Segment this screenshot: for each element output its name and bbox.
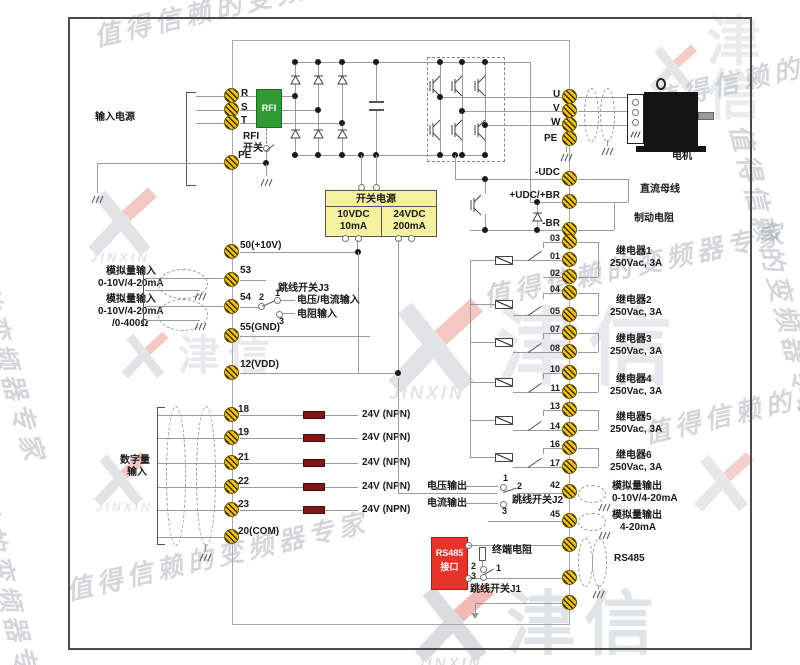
wire	[158, 415, 224, 416]
terminal-t	[224, 115, 239, 130]
terminal-14	[562, 422, 577, 437]
analog-in2-range: 0-10V/4-20mA	[98, 306, 164, 318]
wire	[325, 510, 358, 511]
igbt-icon	[448, 74, 466, 98]
igbt-icon	[471, 74, 489, 98]
junction-dot	[339, 59, 345, 65]
wire-dashed	[266, 128, 267, 144]
wire	[325, 438, 358, 439]
terminal-22-label: 22	[238, 476, 249, 488]
rs485-port-box: RS485 接口	[431, 537, 468, 590]
smps-title: 开关电源	[356, 194, 396, 206]
junction-dot	[315, 107, 321, 113]
terminal-23-label: 23	[238, 499, 249, 511]
junction-dot	[482, 59, 488, 65]
terminal-11	[562, 384, 577, 399]
wiring-diagram: 值得信赖的变频器专家 值得信赖的变频器专家 值得信赖的变频器专家 值得信赖的变频…	[0, 0, 800, 665]
wire	[513, 392, 562, 393]
igbt-icon	[448, 118, 466, 142]
wire	[578, 333, 598, 334]
relay4-name: 继电器4	[616, 374, 652, 386]
wire	[470, 260, 495, 261]
ground-icon	[598, 503, 611, 512]
wire	[470, 420, 495, 421]
diode-icon	[336, 126, 349, 140]
terminal-t-label: T	[241, 115, 247, 127]
terminal-20-label: 20(COM)	[238, 526, 279, 538]
wire	[475, 603, 562, 604]
wire	[543, 448, 544, 454]
terminal-54-label: 54	[240, 292, 251, 304]
wire	[513, 430, 562, 431]
digital-in-bracket	[157, 407, 158, 545]
terminal-08	[562, 344, 577, 359]
relay-group-bracket	[598, 410, 599, 430]
wire	[578, 315, 598, 316]
wire	[196, 123, 224, 124]
dc-bus-label: 直流母线	[640, 184, 680, 196]
junction-dot	[459, 59, 465, 65]
wire-u	[440, 97, 562, 98]
relay3-name: 继电器3	[616, 334, 652, 346]
wire	[464, 486, 498, 487]
wire	[628, 179, 629, 202]
junction-dot	[482, 152, 488, 158]
rfi-switch-label: RFI	[243, 131, 259, 143]
brake-resistor-label: 制动电阻	[634, 213, 674, 225]
wire	[325, 463, 358, 464]
relay-group-bracket	[598, 293, 599, 315]
termination-resistor-label: 终端电阻	[492, 545, 532, 557]
terminal-22	[224, 479, 239, 494]
wire	[240, 280, 266, 281]
digital-in-label: 数字量	[120, 455, 150, 467]
j2-pos3: 3	[502, 506, 507, 516]
diode-icon	[336, 72, 349, 86]
motor-base	[636, 146, 706, 152]
wire	[513, 315, 562, 316]
j1-pos3: 3	[471, 571, 476, 581]
wire	[240, 463, 303, 464]
terminal-54	[224, 299, 239, 314]
relay5-rating: 250Vac, 3A	[610, 424, 662, 436]
wire	[97, 163, 98, 193]
wire	[578, 179, 628, 180]
capacitor-plate	[369, 109, 384, 111]
drive-body-frame	[232, 40, 570, 625]
shield-oval	[196, 406, 216, 546]
terminal-v	[562, 103, 577, 118]
analog-in1-range: 0-10V/4-20mA	[98, 278, 164, 290]
wire	[543, 333, 544, 339]
wire	[464, 503, 498, 504]
smps-v1: 10VDC	[337, 209, 369, 220]
motor-terminal	[632, 109, 639, 116]
ground-icon	[199, 553, 212, 562]
wire	[158, 438, 224, 439]
terminal-17	[562, 459, 577, 474]
wire	[543, 293, 544, 299]
j2-pos1: 1	[503, 473, 508, 483]
terminal-pe-out-label: PE	[544, 133, 557, 145]
j3-option-resistance: 电阻输入	[297, 309, 337, 321]
wire	[97, 163, 224, 164]
smps-a2: 200mA	[393, 221, 426, 232]
diode-icon	[312, 72, 325, 86]
terminal-02	[562, 269, 577, 284]
wire	[205, 544, 206, 552]
wire	[488, 521, 562, 522]
digital-in-voltage-label: 24V (NPN)	[362, 504, 410, 516]
relay6-rating: 250Vac, 3A	[610, 462, 662, 474]
rfi-filter-box: RFI	[256, 89, 282, 128]
wire	[240, 438, 303, 439]
motor-terminal	[632, 99, 639, 106]
jumper-j2-label: 跳线开关J2	[512, 495, 563, 507]
terminal-23	[224, 502, 239, 517]
wire	[607, 140, 608, 146]
terminal-v-label: V	[553, 103, 560, 115]
wire	[543, 373, 562, 374]
wire	[543, 242, 562, 243]
wire	[266, 164, 267, 176]
terminal-53-label: 53	[240, 265, 251, 277]
wire	[398, 493, 497, 494]
rs485-bus-label: RS485	[614, 553, 645, 565]
terminal-50	[224, 244, 239, 259]
digital-in-voltage-label: 24V (NPN)	[362, 481, 410, 493]
junction-dot	[373, 59, 379, 65]
wire	[543, 293, 562, 294]
ground-icon	[260, 178, 273, 187]
current-output-label: 电流输出	[427, 498, 467, 510]
junction-dot	[437, 94, 443, 100]
motor-ground-icon	[630, 130, 641, 139]
wire	[358, 252, 359, 373]
wire	[543, 410, 562, 411]
termination-resistor	[479, 547, 486, 561]
diode-icon	[289, 126, 302, 140]
terminal-05	[562, 307, 577, 322]
digital-in-voltage-label: 24V (NPN)	[362, 432, 410, 444]
junction-dot	[292, 152, 298, 158]
jinxin-en: JINXIN	[416, 655, 482, 665]
terminal-rs485-a	[562, 537, 577, 552]
wire	[578, 352, 598, 353]
terminal-12	[224, 365, 239, 380]
wire	[543, 333, 562, 334]
j1-pin3	[480, 574, 487, 581]
wire	[543, 410, 544, 416]
terminal-45	[562, 513, 577, 528]
terminal-55	[224, 328, 239, 343]
ground-icon	[592, 590, 605, 599]
wire	[281, 300, 295, 301]
terminal-r	[224, 88, 239, 103]
wire	[578, 373, 598, 374]
terminal-20-com	[224, 529, 239, 544]
wire	[513, 260, 562, 261]
arrow-down-icon	[471, 613, 479, 619]
motor-body	[644, 92, 698, 146]
junction-dot	[437, 59, 443, 65]
terminal-13	[562, 402, 577, 417]
terminal-55-label: 55(GND)	[240, 322, 280, 334]
input-resistor	[303, 506, 325, 514]
junction-dot	[459, 108, 465, 114]
motor-label: 电机	[672, 151, 692, 163]
terminal-s-label: S	[241, 102, 248, 114]
wire	[240, 307, 258, 308]
wire	[158, 463, 224, 464]
relay-coil	[495, 416, 513, 425]
motor-terminal	[632, 119, 639, 126]
terminal-w-label: W	[551, 117, 560, 129]
input-resistor	[303, 434, 325, 442]
wire	[578, 293, 598, 294]
relay-coil	[495, 256, 513, 265]
relay2-rating: 250Vac, 3A	[610, 307, 662, 319]
wire	[530, 62, 531, 202]
junction-dot	[315, 59, 321, 65]
diode-icon	[312, 126, 325, 140]
wire	[455, 179, 562, 180]
terminal-19	[224, 430, 239, 445]
input-power-label: 输入电源	[95, 112, 135, 124]
digital-in-bracket-tick	[157, 407, 165, 408]
input-bracket-tick	[186, 185, 196, 186]
relay-coil-bus	[470, 260, 471, 457]
wire	[196, 96, 224, 97]
wire	[578, 242, 598, 243]
wire	[376, 155, 377, 185]
wire	[240, 487, 303, 488]
wire	[485, 182, 486, 194]
terminal-42	[562, 484, 577, 499]
wire	[196, 110, 224, 111]
relay-coil	[495, 453, 513, 462]
wire	[543, 448, 562, 449]
diode-icon	[289, 72, 302, 86]
shield-oval	[592, 538, 607, 587]
capacitor-plate	[369, 101, 384, 103]
terminal-10	[562, 365, 577, 380]
igbt-icon	[426, 118, 444, 142]
terminal-21-label: 21	[238, 452, 249, 464]
voltage-output-label: 电压输出	[427, 481, 467, 493]
wire	[578, 230, 614, 231]
wire	[578, 430, 598, 431]
j3-option-voltage-current: 电压/电流输入	[297, 295, 360, 307]
jumper-j1-label: 跳线开关J1	[470, 584, 521, 596]
terminal-19-label: 19	[238, 427, 249, 439]
terminal-u-label: U	[553, 89, 560, 101]
wire	[566, 146, 567, 152]
wire	[240, 336, 370, 337]
relay-group-bracket	[598, 373, 599, 392]
ground-icon	[560, 153, 573, 162]
terminal-03	[562, 234, 577, 249]
wire	[283, 313, 295, 314]
relay2-name: 继电器2	[616, 295, 652, 307]
watermark-script: 值得信赖的变频器专家	[0, 160, 55, 468]
wire	[398, 240, 399, 373]
junction-dot	[437, 152, 443, 158]
input-bracket-tick	[186, 92, 196, 93]
j3-pos2: 2	[259, 292, 264, 302]
junction-dot	[482, 227, 488, 233]
relay6-name: 继电器6	[616, 450, 652, 462]
br-neg-label: -BR	[525, 218, 560, 230]
analog-in2-label: 模拟量输入	[106, 294, 156, 306]
terminal-12-label: 12(VDD)	[240, 359, 279, 371]
terminal-16	[562, 440, 577, 455]
relay-group-bracket	[598, 242, 599, 277]
ground-icon	[194, 292, 207, 301]
digital-in-bracket-tick	[157, 544, 165, 545]
shield-oval	[166, 406, 186, 546]
udc-pos-label: +UDC/+BR	[497, 190, 560, 202]
relay1-name: 继电器1	[616, 246, 652, 258]
junction-dot	[292, 93, 298, 99]
terminal-07	[562, 325, 577, 340]
wire	[158, 537, 224, 538]
relay-coil	[495, 338, 513, 347]
wire	[517, 493, 562, 494]
terminal-45-label: 45	[538, 509, 560, 519]
junction-dot	[339, 152, 345, 158]
relay1-rating: 250Vac, 3A	[610, 258, 662, 270]
analog-in1-label: 模拟量输入	[106, 266, 156, 278]
analog-in-bracket	[143, 272, 144, 324]
terminal-42-label: 42	[538, 480, 560, 490]
relay-coil	[495, 300, 513, 309]
j3-pos1: 1	[275, 288, 280, 298]
wire	[361, 155, 362, 185]
relay-coil	[495, 378, 513, 387]
wire	[470, 457, 495, 458]
analog-out1-range: 0-10V/4-20mA	[612, 493, 678, 505]
relay4-rating: 250Vac, 3A	[610, 386, 662, 398]
smps-cell-10v: 10VDC10mA	[326, 209, 381, 233]
wire	[470, 304, 495, 305]
terminal-r-label: R	[241, 88, 248, 100]
wire	[398, 378, 399, 493]
analog-out2-label: 模拟量输出	[612, 510, 662, 522]
wire	[325, 487, 358, 488]
shield-oval	[578, 538, 593, 587]
jumper-j3-label: 跳线开关J3	[278, 283, 329, 295]
rs485-box-label2: 接口	[432, 562, 467, 572]
wire	[158, 487, 224, 488]
wire	[543, 373, 544, 379]
terminal-udc-neg	[562, 171, 577, 186]
motor-shaft	[698, 112, 714, 120]
wire	[578, 448, 598, 449]
input-resistor	[303, 411, 325, 419]
terminal-18-label: 18	[238, 404, 249, 416]
junction-dot	[339, 120, 345, 126]
wire	[455, 155, 456, 179]
terminal-pe-label: PE	[238, 150, 251, 162]
ground-icon	[91, 195, 104, 204]
digital-in-voltage-label: 24V (NPN)	[362, 457, 410, 469]
udc-neg-label: -UDC	[520, 167, 560, 179]
terminal-pe-out	[562, 131, 577, 146]
terminal-18	[224, 407, 239, 422]
digital-in-label2: 输入	[127, 467, 147, 479]
smps-a1: 10mA	[340, 221, 367, 232]
relay5-name: 继电器5	[616, 412, 652, 424]
brake-igbt-icon	[467, 193, 485, 217]
relay-group-bracket	[598, 448, 599, 467]
wire	[158, 510, 224, 511]
wire	[614, 202, 615, 230]
junction-dot	[459, 152, 465, 158]
terminal-bottom	[562, 595, 577, 610]
junction-dot	[292, 59, 298, 65]
shield-oval	[600, 88, 615, 142]
junction-dot	[315, 152, 321, 158]
analog-out2-range: 4-20mA	[620, 522, 656, 534]
terminal-rs485-b	[562, 570, 577, 585]
wire	[376, 111, 377, 155]
rs485-box-label1: RS485	[432, 548, 467, 558]
terminal-udc-pos	[562, 194, 577, 209]
junction-dot	[482, 122, 488, 128]
junction-dot	[395, 370, 401, 376]
smps-pin	[408, 235, 415, 242]
j3-pos3: 3	[279, 316, 284, 326]
j2-pos2: 2	[517, 481, 522, 491]
wire	[513, 467, 562, 468]
wire	[376, 62, 377, 103]
shield-oval	[578, 485, 606, 503]
wire	[578, 392, 598, 393]
terminal-53	[224, 272, 239, 287]
smps-cell-24v: 24VDC200mA	[382, 209, 437, 233]
motor-lifting-eye	[656, 78, 666, 90]
j1-pos1: 1	[496, 563, 501, 573]
terminal-01	[562, 252, 577, 267]
shield-oval	[578, 513, 606, 531]
rfi-box-label: RFI	[257, 103, 281, 113]
terminal-w	[562, 117, 577, 132]
smps-pin	[342, 235, 349, 242]
input-resistor	[303, 483, 325, 491]
wire	[578, 467, 598, 468]
input-resistor	[303, 459, 325, 467]
relay-group-bracket	[598, 333, 599, 352]
wire	[543, 242, 544, 248]
terminal-21	[224, 455, 239, 470]
wire	[543, 277, 562, 278]
wire	[578, 202, 628, 203]
wire	[470, 382, 495, 383]
shield-oval	[584, 88, 599, 142]
analog-out1-label: 模拟量输出	[612, 481, 662, 493]
wire	[513, 352, 562, 353]
smps-v2: 24VDC	[393, 209, 425, 220]
j1-pos2: 2	[471, 561, 476, 571]
wire	[598, 585, 599, 589]
terminal-pe	[224, 155, 239, 170]
wire	[240, 252, 358, 253]
digital-in-voltage-label: 24V (NPN)	[362, 409, 410, 421]
wire	[475, 603, 476, 613]
terminal-u	[562, 89, 577, 104]
wire	[240, 373, 398, 374]
